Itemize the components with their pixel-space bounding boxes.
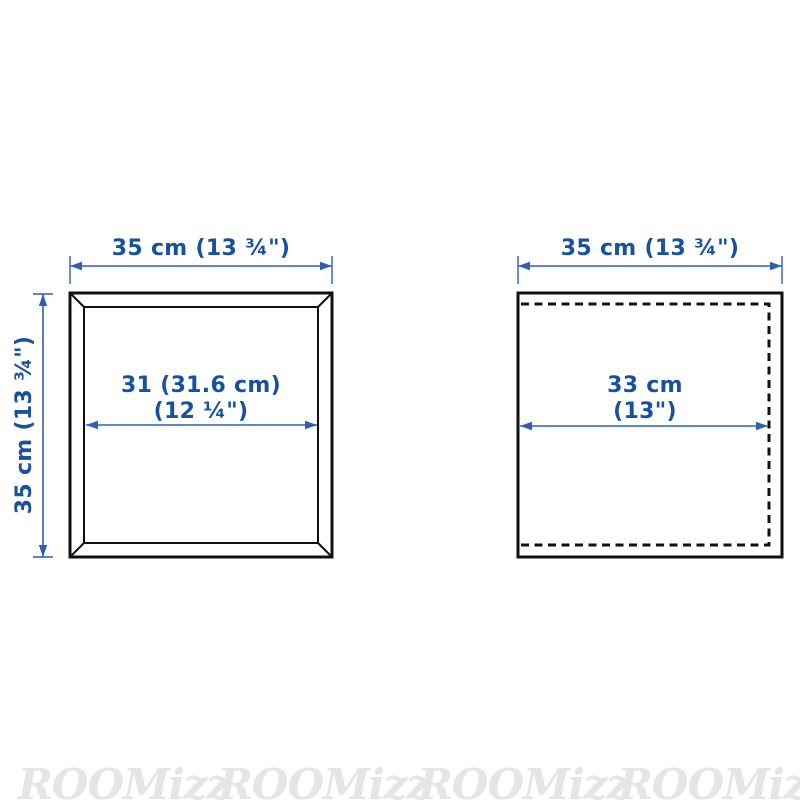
arrowhead-left bbox=[70, 262, 82, 270]
arrowhead-right bbox=[770, 262, 782, 270]
left-top-dimension-label: 35 cm (13 ¾") bbox=[69, 236, 333, 262]
arrowhead-top bbox=[39, 294, 47, 306]
left-height-dimension-label: 35 cm (13 ¾") bbox=[12, 336, 38, 514]
miter-top-left bbox=[71, 294, 85, 308]
watermark-text: ROOMizz bbox=[418, 760, 629, 800]
miter-bottom-right bbox=[317, 542, 331, 556]
left-inner-dimension-line2: (12 ¼") bbox=[71, 399, 331, 425]
watermark-text: ROOMizz bbox=[18, 760, 229, 800]
watermark-text: ROOMizz bbox=[618, 760, 800, 800]
watermark-text: ROOMizz bbox=[218, 760, 429, 800]
right-inner-dimension-line2: (13") bbox=[515, 399, 775, 425]
arrowhead-right bbox=[320, 262, 332, 270]
arrowhead-left bbox=[518, 262, 530, 270]
miter-top-right bbox=[317, 294, 331, 308]
product-dimension-diagram: 35 cm (13 ¾") 35 cm (13 ¾") 31 (31.6 cm)… bbox=[0, 0, 800, 800]
left-inner-dimension-line1: 31 (31.6 cm) bbox=[71, 373, 331, 399]
right-cabinet-outer-edge bbox=[518, 293, 782, 557]
miter-bottom-left bbox=[71, 542, 85, 556]
arrowhead-bottom bbox=[39, 545, 47, 557]
right-top-dimension-label: 35 cm (13 ¾") bbox=[517, 236, 783, 262]
right-inner-dimension-line1: 33 cm bbox=[515, 373, 775, 399]
left-inner-dimension-label: 31 (31.6 cm) (12 ¼") bbox=[71, 373, 331, 425]
right-inner-dimension-label: 33 cm (13") bbox=[515, 373, 775, 425]
right-cabinet-outline bbox=[518, 293, 782, 557]
